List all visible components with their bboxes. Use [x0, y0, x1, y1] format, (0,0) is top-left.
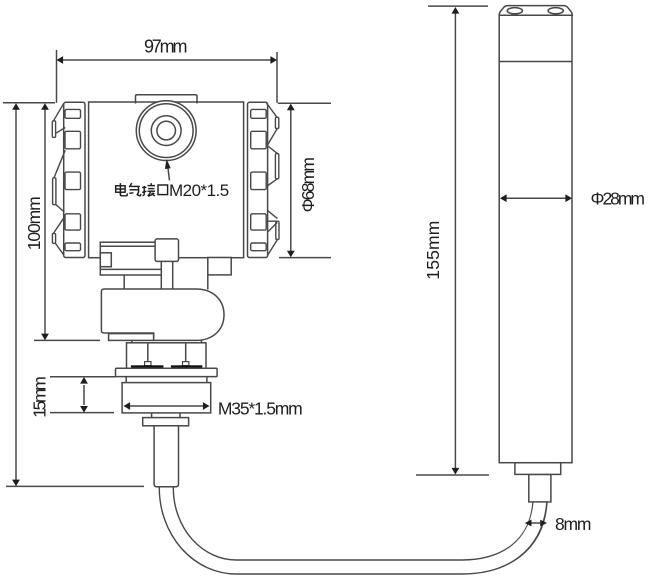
svg-text:M20*1.5: M20*1.5: [169, 181, 229, 200]
svg-text:8mm: 8mm: [555, 514, 592, 534]
svg-text:Φ68mm: Φ68mm: [298, 157, 318, 212]
svg-text:97mm: 97mm: [144, 37, 188, 57]
svg-text:100mm: 100mm: [24, 196, 44, 250]
svg-text:Φ28mm: Φ28mm: [591, 189, 646, 209]
svg-text:M35*1.5mm: M35*1.5mm: [218, 399, 303, 419]
svg-text:15mm: 15mm: [29, 376, 49, 418]
svg-text:155mm: 155mm: [423, 221, 443, 280]
